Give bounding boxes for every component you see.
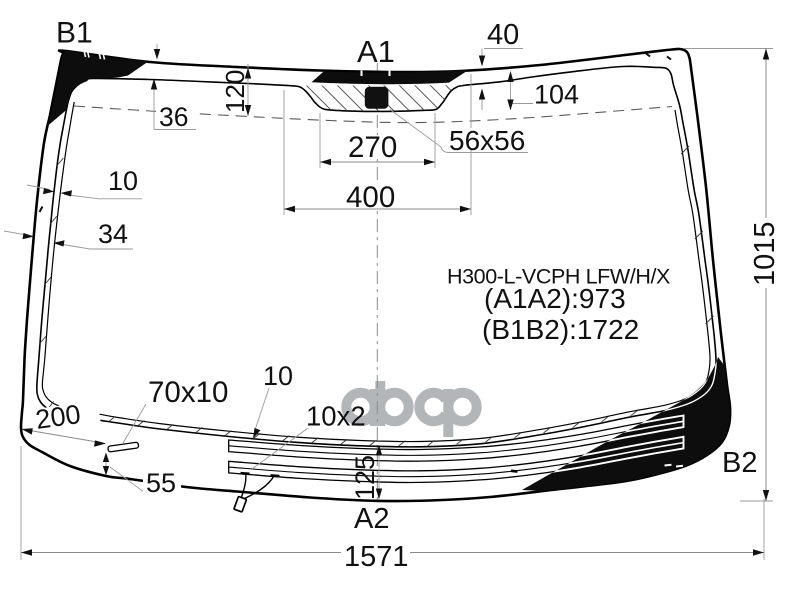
svg-text:B1: B1 [56,17,93,50]
svg-text:55: 55 [146,468,176,498]
svg-text:104: 104 [534,80,579,110]
svg-text:10: 10 [108,166,138,196]
svg-text:10x2: 10x2 [306,401,366,432]
svg-text:56x56: 56x56 [449,125,525,156]
svg-text:40: 40 [487,19,519,51]
svg-text:120: 120 [220,70,250,113]
svg-text:400: 400 [346,181,395,214]
svg-text:125: 125 [350,455,380,500]
svg-text:34: 34 [98,219,128,249]
svg-text:1571: 1571 [344,541,409,573]
svg-text:10: 10 [263,361,293,391]
svg-text:A1: A1 [357,34,395,69]
svg-text:200: 200 [34,399,83,435]
svg-text:270: 270 [348,131,397,164]
svg-text:(A1A2):973: (A1A2):973 [484,283,626,314]
svg-text:1015: 1015 [749,221,781,286]
svg-text:B2: B2 [722,447,757,479]
svg-text:A2: A2 [354,503,389,535]
svg-text:70x10: 70x10 [148,376,228,409]
svg-text:36: 36 [159,102,188,132]
svg-text:(B1B2):1722: (B1B2):1722 [482,314,639,345]
